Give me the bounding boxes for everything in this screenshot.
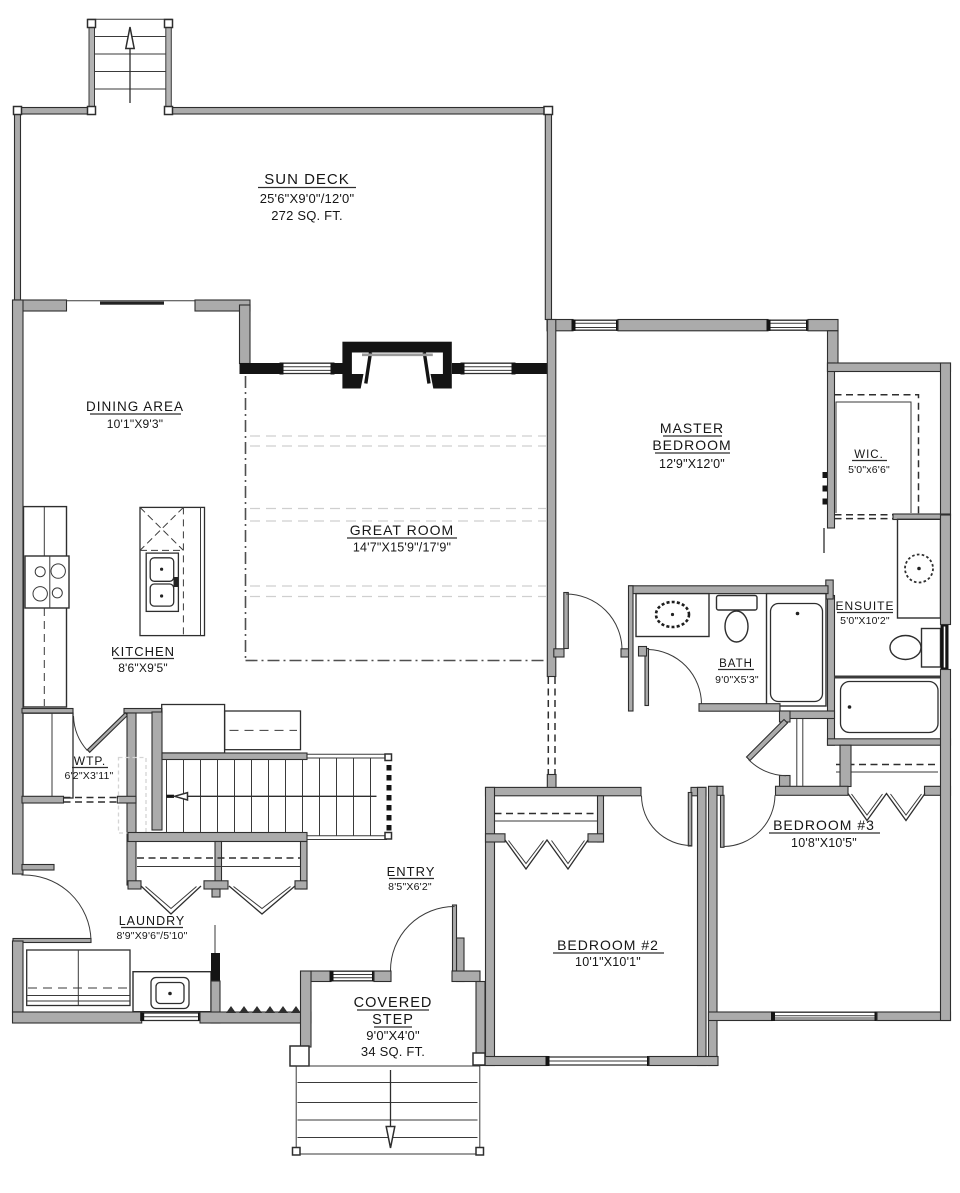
svg-text:ENTRY: ENTRY bbox=[387, 864, 436, 879]
svg-text:DINING AREA: DINING AREA bbox=[86, 399, 184, 414]
svg-text:8'9"X9'6"/5'10": 8'9"X9'6"/5'10" bbox=[117, 930, 188, 942]
svg-text:MASTER: MASTER bbox=[660, 420, 724, 436]
svg-text:BEDROOM #3: BEDROOM #3 bbox=[773, 817, 875, 833]
svg-text:9'0"X4'0": 9'0"X4'0" bbox=[366, 1028, 420, 1043]
svg-text:BEDROOM: BEDROOM bbox=[652, 437, 731, 453]
svg-text:12'9"X12'0": 12'9"X12'0" bbox=[659, 457, 725, 471]
svg-text:8'5"X6'2": 8'5"X6'2" bbox=[388, 881, 432, 893]
svg-text:8'6"X9'5": 8'6"X9'5" bbox=[118, 661, 168, 675]
svg-text:GREAT ROOM: GREAT ROOM bbox=[350, 522, 454, 538]
svg-text:10'8"X10'5": 10'8"X10'5" bbox=[791, 836, 857, 850]
svg-text:34 SQ. FT.: 34 SQ. FT. bbox=[361, 1044, 425, 1059]
svg-text:SUN DECK: SUN DECK bbox=[264, 171, 350, 188]
svg-text:6'2"X3'11": 6'2"X3'11" bbox=[65, 770, 114, 782]
svg-text:KITCHEN: KITCHEN bbox=[111, 644, 175, 659]
svg-text:5'0"X10'2": 5'0"X10'2" bbox=[840, 615, 890, 627]
svg-text:WIC.: WIC. bbox=[854, 449, 884, 461]
svg-text:25'6"X9'0"/12'0": 25'6"X9'0"/12'0" bbox=[260, 191, 355, 206]
svg-text:COVERED: COVERED bbox=[354, 995, 433, 1011]
svg-text:5'0"x6'6": 5'0"x6'6" bbox=[848, 464, 890, 476]
svg-text:272 SQ. FT.: 272 SQ. FT. bbox=[271, 208, 343, 223]
svg-text:14'7"X15'9"/17'9": 14'7"X15'9"/17'9" bbox=[353, 541, 451, 555]
svg-text:ENSUITE: ENSUITE bbox=[835, 599, 894, 613]
svg-text:STEP: STEP bbox=[372, 1012, 414, 1028]
svg-text:10'1"X10'1": 10'1"X10'1" bbox=[575, 955, 641, 969]
svg-text:BATH: BATH bbox=[719, 658, 753, 670]
svg-text:BEDROOM #2: BEDROOM #2 bbox=[557, 937, 659, 953]
svg-text:9'0"X5'3": 9'0"X5'3" bbox=[715, 674, 759, 686]
svg-text:WTP.: WTP. bbox=[74, 754, 106, 768]
svg-text:LAUNDRY: LAUNDRY bbox=[119, 914, 186, 928]
svg-text:10'1"X9'3": 10'1"X9'3" bbox=[107, 417, 163, 431]
